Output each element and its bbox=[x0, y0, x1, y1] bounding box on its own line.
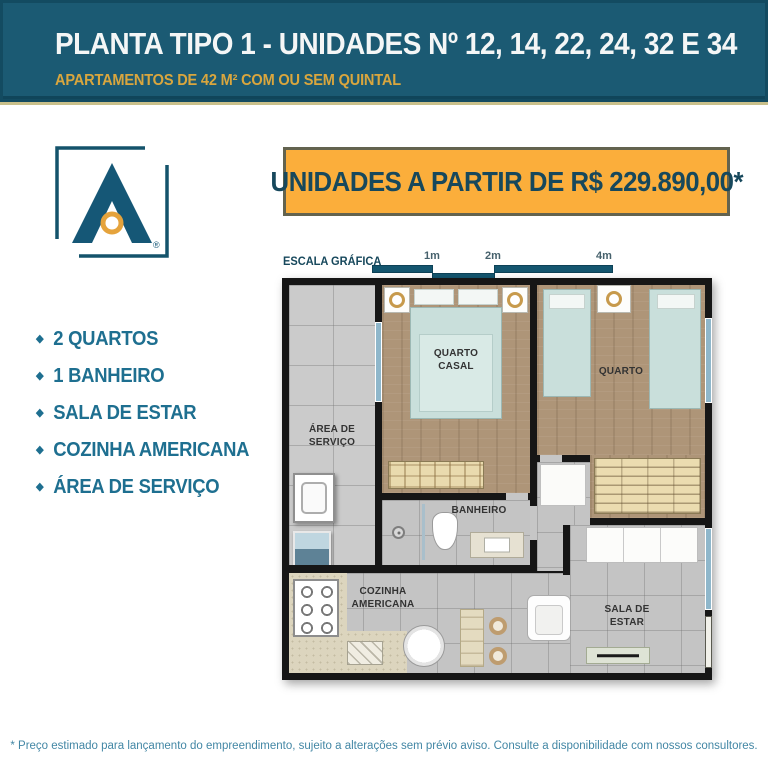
feature-item: ◆COZINHA AMERICANA bbox=[36, 431, 249, 468]
page-title: PLANTA TIPO 1 - UNIDADES Nº 12, 14, 22, … bbox=[55, 26, 737, 62]
room-sala: SALA DE ESTAR bbox=[570, 525, 705, 673]
room-label-quarto: QUARTO bbox=[586, 365, 656, 378]
stool-icon bbox=[489, 617, 507, 635]
scale-bar-segment bbox=[494, 265, 613, 273]
quarto-closet-nook bbox=[590, 455, 705, 518]
feature-item: ◆2 QUARTOS bbox=[36, 320, 249, 357]
diamond-bullet-icon: ◆ bbox=[36, 332, 43, 345]
pillow-icon bbox=[657, 294, 695, 309]
feature-label: COZINHA AMERICANA bbox=[53, 438, 249, 462]
room-label-quarto-casal: QUARTO CASAL bbox=[421, 347, 491, 373]
feature-item: ◆ÁREA DE SERVIÇO bbox=[36, 468, 249, 505]
entrance-door-icon bbox=[705, 616, 712, 668]
tv-rack-icon bbox=[586, 647, 650, 664]
nightstand-icon bbox=[597, 285, 631, 313]
window-icon bbox=[705, 318, 712, 403]
room-quarto-casal: QUARTO CASAL bbox=[382, 285, 530, 493]
room-label-cozinha: COZINHA AMERICANA bbox=[337, 585, 429, 611]
hall-dresser-icon bbox=[540, 464, 586, 506]
bathroom-sink-icon bbox=[470, 532, 524, 558]
room-quarto: QUARTO bbox=[537, 285, 705, 455]
scale-tick-4m: 4m bbox=[596, 250, 612, 262]
scale-bar-segment bbox=[372, 265, 433, 273]
feature-list: ◆2 QUARTOS ◆1 BANHEIRO ◆SALA DE ESTAR ◆C… bbox=[36, 320, 273, 505]
shower-glass-icon bbox=[422, 504, 425, 560]
feature-label: 1 BANHEIRO bbox=[53, 364, 164, 388]
pillow-icon bbox=[458, 289, 498, 305]
blanket-icon bbox=[419, 334, 493, 412]
header-banner: PLANTA TIPO 1 - UNIDADES Nº 12, 14, 22, … bbox=[0, 0, 768, 102]
room-label-sala: SALA DE ESTAR bbox=[598, 603, 656, 629]
page-subtitle: APARTAMENTOS DE 42 M² COM OU SEM QUINTAL bbox=[55, 72, 401, 90]
room-label-area-servico: ÁREA DE SERVIÇO bbox=[297, 423, 367, 449]
scale-tick-1m: 1m bbox=[424, 250, 440, 262]
round-table-icon bbox=[403, 625, 445, 667]
shower-drain-icon bbox=[392, 526, 405, 539]
room-cozinha: COZINHA AMERICANA bbox=[289, 573, 570, 673]
toilet-icon bbox=[432, 512, 458, 550]
flyer-page: PLANTA TIPO 1 - UNIDADES Nº 12, 14, 22, … bbox=[0, 0, 768, 768]
feature-label: SALA DE ESTAR bbox=[53, 401, 196, 425]
stove-icon bbox=[293, 579, 339, 637]
feature-label: ÁREA DE SERVIÇO bbox=[53, 475, 219, 499]
room-area-servico: ÁREA DE SERVIÇO bbox=[289, 285, 375, 565]
breakfast-counter-icon bbox=[460, 609, 484, 667]
registered-mark: ® bbox=[153, 240, 160, 250]
pillow-icon bbox=[414, 289, 454, 305]
kitchen-sink-icon bbox=[347, 641, 383, 665]
diamond-bullet-icon: ◆ bbox=[36, 443, 43, 456]
door-icon bbox=[540, 455, 562, 462]
window-icon bbox=[705, 528, 712, 610]
sofa-cabinet-icon bbox=[586, 527, 698, 563]
armchair-icon bbox=[527, 595, 571, 641]
wall bbox=[289, 565, 537, 573]
brand-logo: ® bbox=[48, 139, 176, 265]
window-icon bbox=[375, 322, 382, 402]
single-bed-icon bbox=[543, 289, 591, 397]
feature-item: ◆1 BANHEIRO bbox=[36, 357, 249, 394]
scale-tick-2m: 2m bbox=[485, 250, 501, 262]
nightstand-icon bbox=[384, 287, 410, 313]
diamond-bullet-icon: ◆ bbox=[36, 406, 43, 419]
single-bed-icon bbox=[649, 289, 701, 409]
room-banheiro: BANHEIRO bbox=[382, 500, 530, 565]
feature-label: 2 QUARTOS bbox=[53, 327, 158, 351]
wardrobe-icon bbox=[388, 461, 484, 489]
footer-disclaimer: * Preço estimado para lançamento do empr… bbox=[0, 740, 768, 752]
logo-a-icon: ® bbox=[48, 139, 176, 265]
wall bbox=[563, 525, 570, 575]
scale-label: ESCALA GRÁFICA bbox=[283, 254, 381, 268]
closet-shelves-icon bbox=[594, 458, 701, 514]
header-accent-line bbox=[0, 102, 768, 105]
stool-icon bbox=[489, 647, 507, 665]
washing-machine-icon bbox=[293, 473, 335, 523]
nightstand-icon bbox=[502, 287, 528, 313]
door-icon bbox=[506, 493, 528, 500]
wall bbox=[590, 518, 705, 525]
diamond-bullet-icon: ◆ bbox=[36, 480, 43, 493]
floor-plan: ÁREA DE SERVIÇO QUARTO CASAL QU bbox=[282, 278, 712, 680]
price-text: UNIDADES A PARTIR DE R$ 229.890,00* bbox=[270, 166, 743, 198]
price-banner: UNIDADES A PARTIR DE R$ 229.890,00* bbox=[283, 147, 730, 216]
diamond-bullet-icon: ◆ bbox=[36, 369, 43, 382]
door-icon bbox=[530, 506, 537, 540]
pillow-icon bbox=[549, 294, 585, 309]
feature-item: ◆SALA DE ESTAR bbox=[36, 394, 249, 431]
